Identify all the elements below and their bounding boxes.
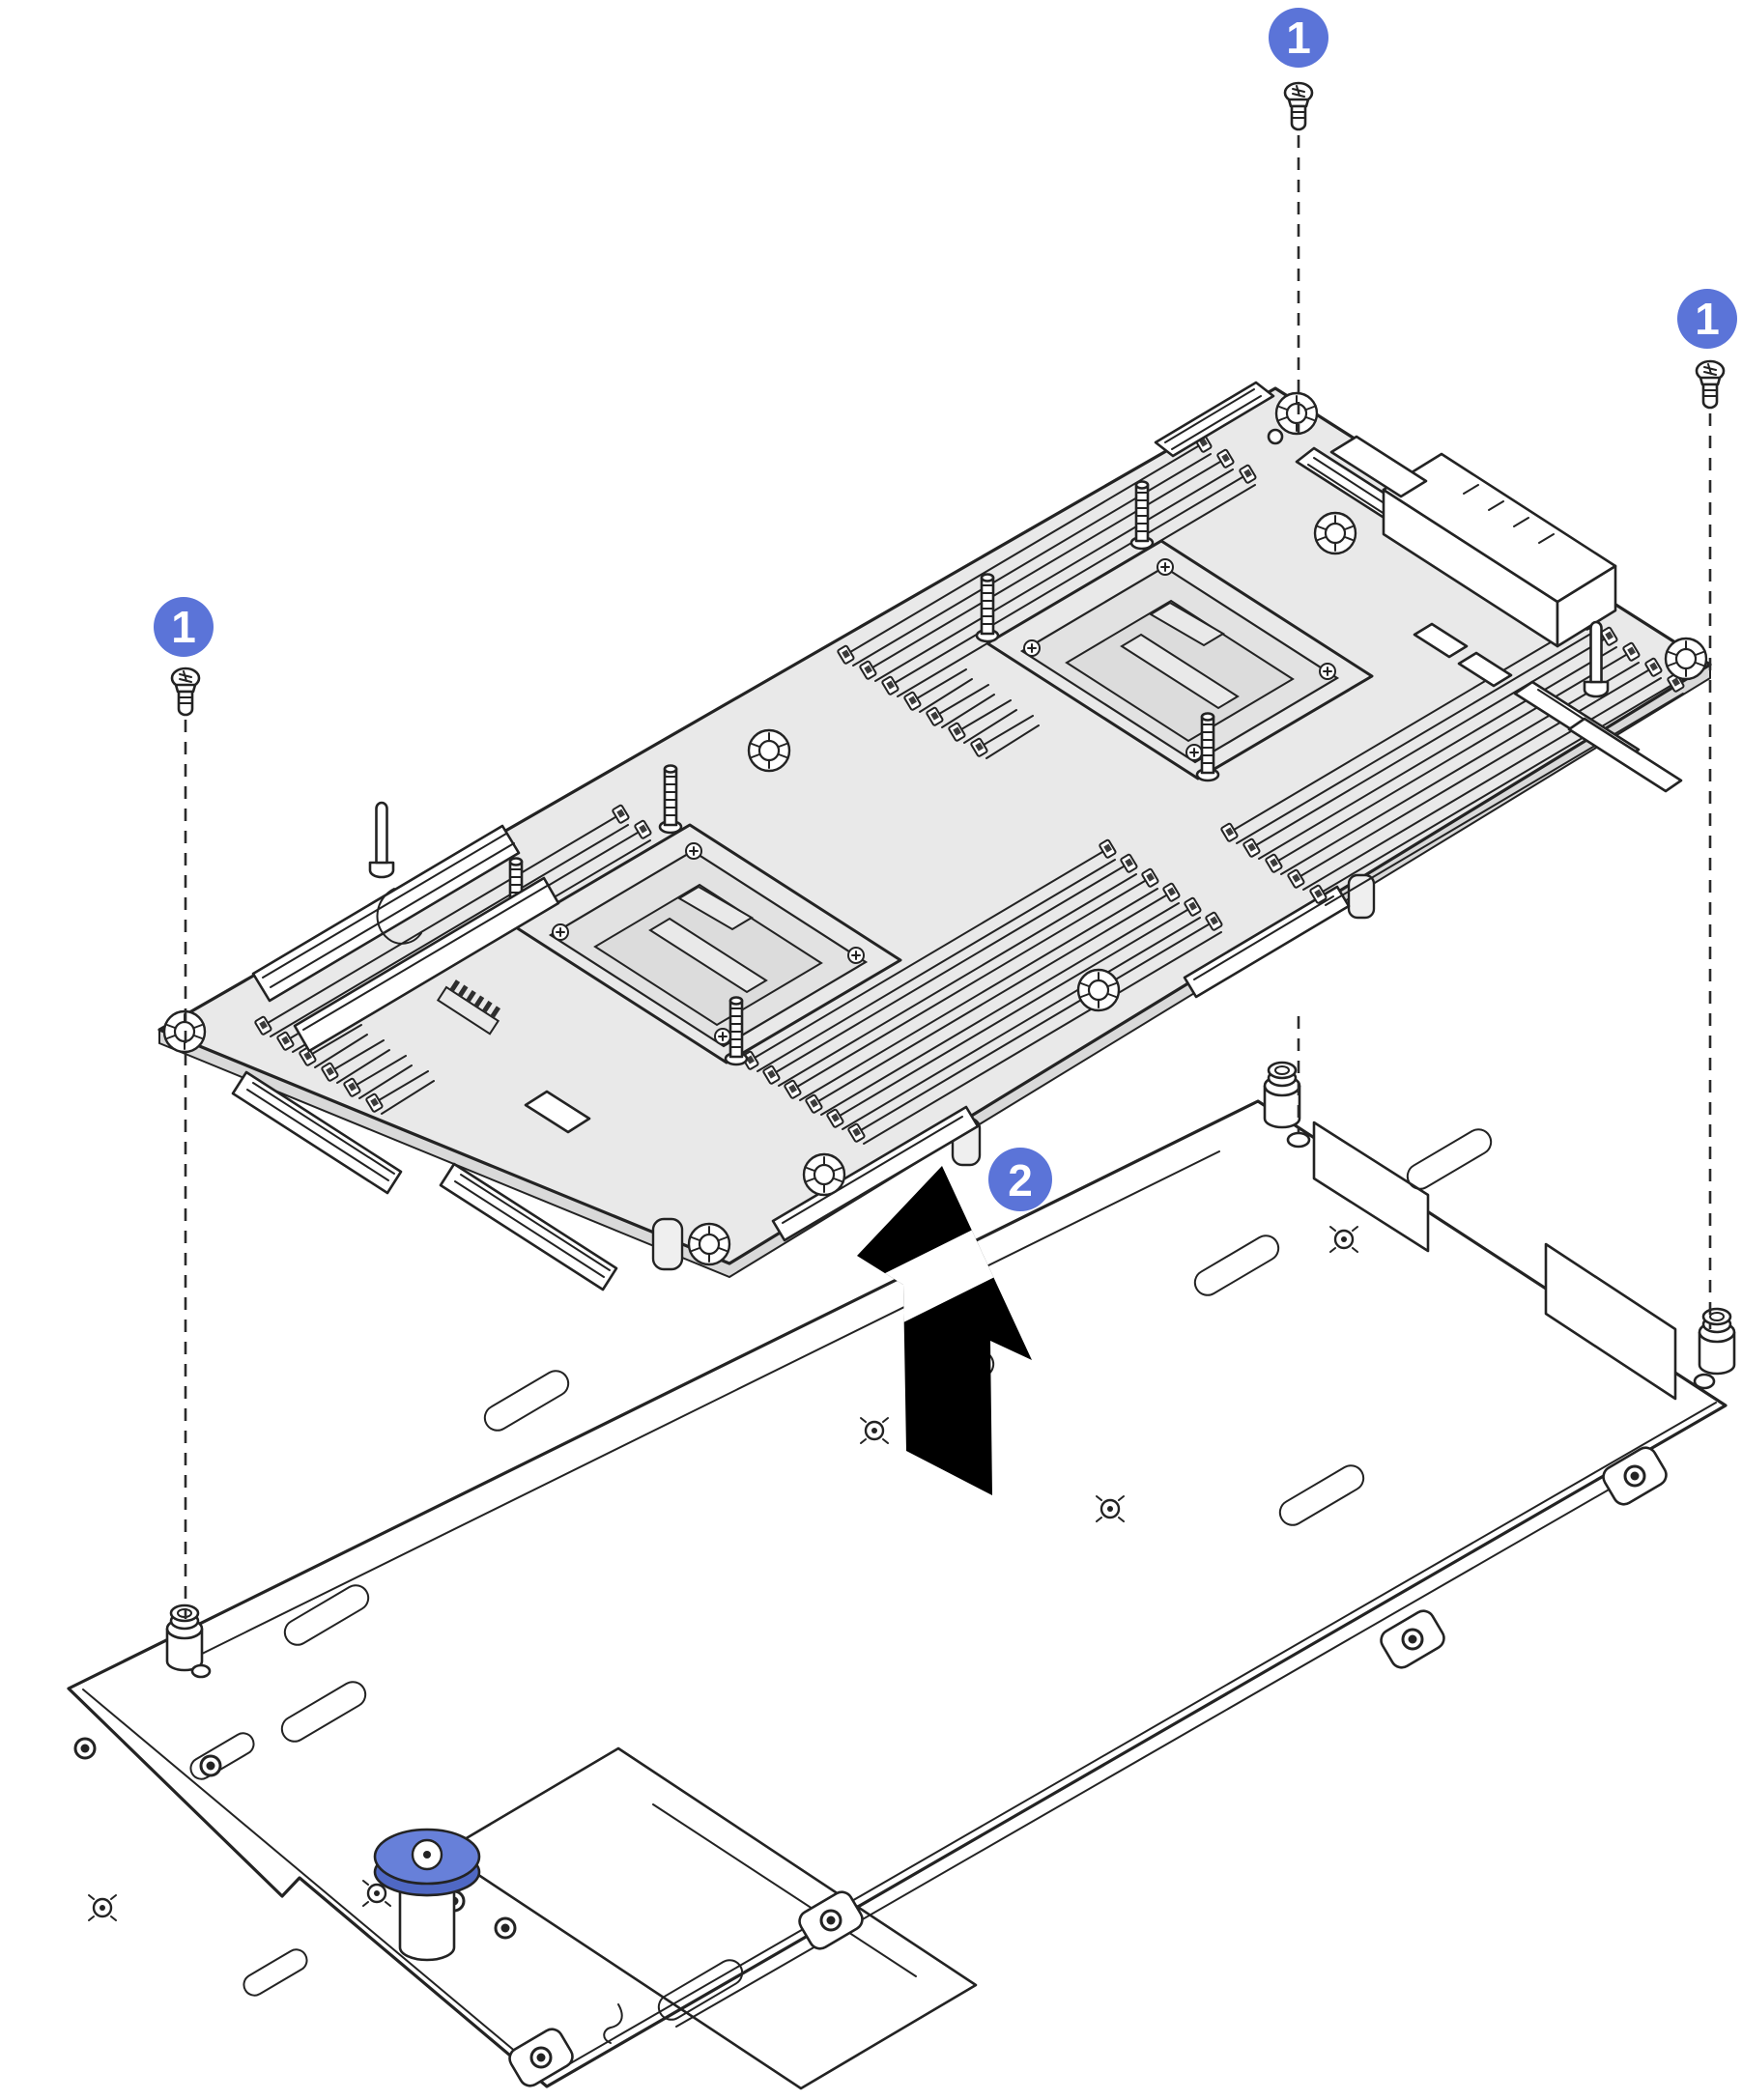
- callout-label: 2: [1008, 1155, 1033, 1206]
- guide-pin-left: [370, 803, 393, 877]
- callout-step1-left: 1: [154, 597, 214, 657]
- standoff-hole: [1288, 1133, 1309, 1147]
- system-board-removal-diagram: 1 1 1 2: [0, 0, 1742, 2100]
- screw-left: [172, 668, 199, 715]
- screw-top: [1285, 83, 1312, 129]
- standoff-right: [1699, 1309, 1734, 1374]
- callout-label: 1: [1695, 294, 1720, 344]
- system-board-removal-figure: 1 1 1 2: [0, 0, 1742, 2100]
- callout-step2-lift: 2: [988, 1148, 1052, 1211]
- callout-step1-top: 1: [1269, 8, 1328, 68]
- standoff-hole: [192, 1665, 210, 1677]
- system-board: [159, 383, 1710, 1290]
- callout-label: 1: [171, 602, 196, 652]
- standoff-hole: [1695, 1375, 1714, 1388]
- callout-step1-right: 1: [1677, 289, 1737, 349]
- screw-right: [1697, 361, 1724, 408]
- callout-label: 1: [1286, 13, 1311, 63]
- standoff-top: [1265, 1063, 1299, 1127]
